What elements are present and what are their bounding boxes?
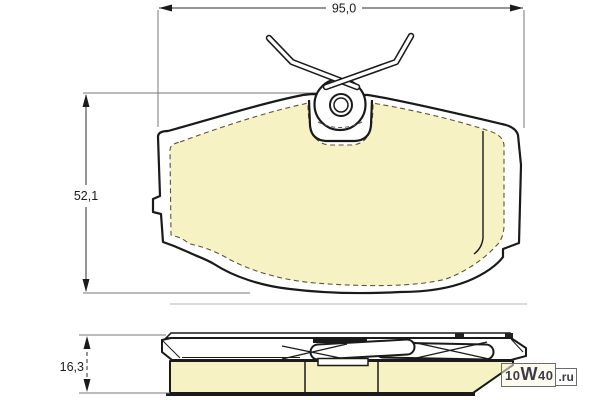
watermark-text-w: W bbox=[520, 364, 538, 384]
side-view bbox=[162, 304, 527, 395]
height-dimension-label: 52,1 bbox=[74, 189, 98, 203]
piston-notch bbox=[318, 359, 368, 366]
dimension-thickness: 16,3 bbox=[60, 335, 170, 393]
arrowhead-down bbox=[84, 379, 91, 392]
spring-clip bbox=[269, 36, 411, 87]
watermark: 10W40.ru bbox=[501, 363, 577, 387]
arrowhead-up bbox=[84, 336, 91, 349]
front-view bbox=[153, 36, 521, 293]
arrowhead-up bbox=[83, 94, 90, 107]
arrowhead-right bbox=[510, 5, 523, 12]
arrowhead-down bbox=[83, 279, 90, 292]
thickness-dimension-label: 16,3 bbox=[60, 360, 84, 374]
technical-drawing: 95,0 52,1 bbox=[0, 0, 600, 400]
watermark-text: 10 bbox=[505, 368, 520, 383]
width-dimension-label: 95,0 bbox=[332, 2, 356, 16]
watermark-text: 40 bbox=[538, 368, 553, 383]
watermark-tld-label: .ru bbox=[556, 368, 576, 386]
watermark-site-label: 10W40 bbox=[501, 363, 556, 387]
drawing-canvas: 95,0 52,1 bbox=[0, 0, 600, 400]
arrowhead-left bbox=[159, 5, 172, 12]
